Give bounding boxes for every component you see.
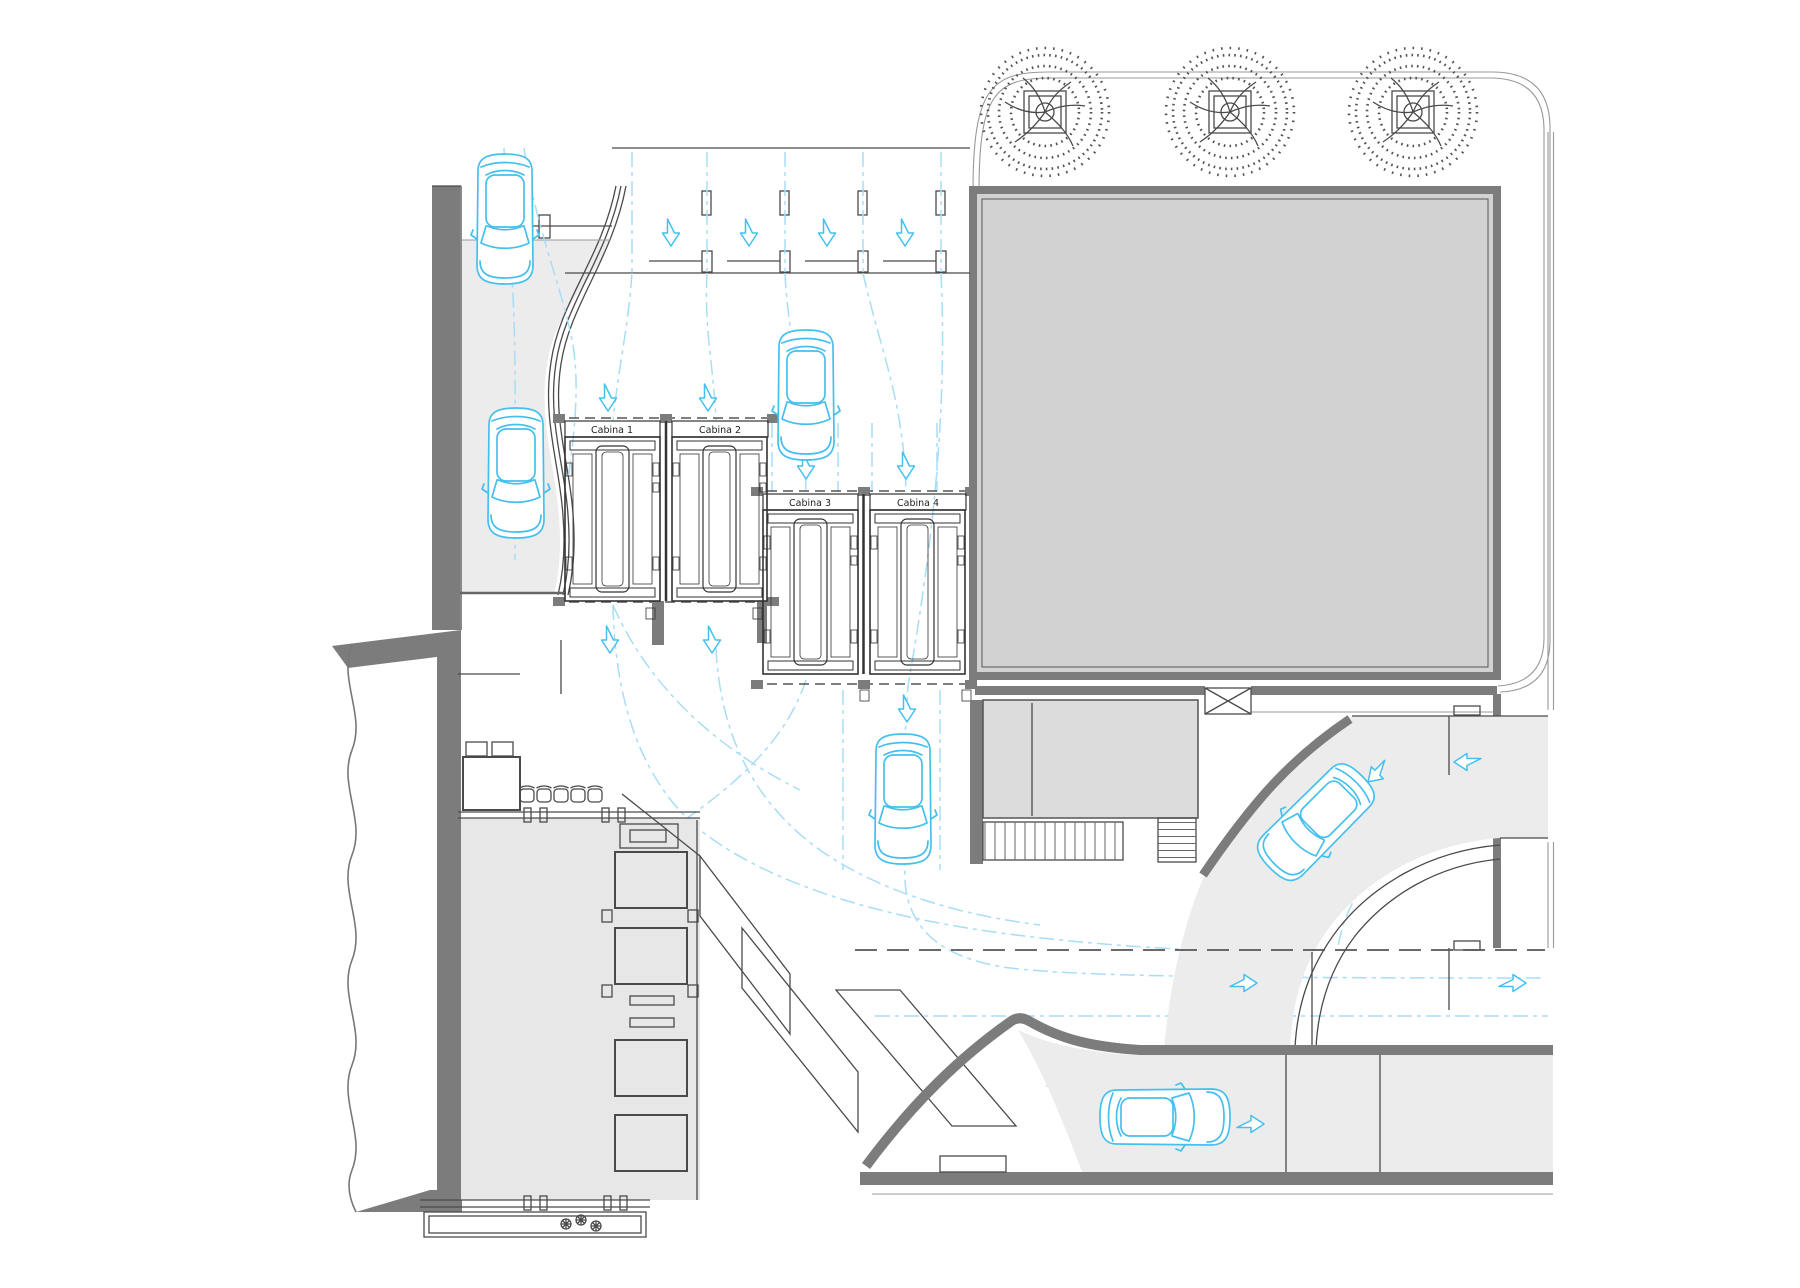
tree-icon [981,48,1109,176]
cabina-1-label: Cabina 1 [591,425,633,436]
car-icon [471,154,539,284]
ticket-machine [466,742,487,756]
flower-icon [576,1215,586,1225]
left-site-walls [332,186,462,1212]
floor-plan: Cabina 1 Cabina 2 Cabina 3 Cabina 4 [0,0,1800,1288]
chair-icon [571,786,586,802]
waiting-chairs [520,786,603,802]
cabina-3-label: Cabina 3 [789,498,831,509]
cabina-3: Cabina 3 [763,494,858,674]
control-booth [463,757,520,810]
stairs [983,818,1196,862]
queue-lanes [565,148,970,273]
cabina-1: Cabina 1 [565,421,660,601]
curved-ramp [1164,706,1548,1048]
lobby-floor [461,818,700,1200]
roof-garden-trees [981,48,1477,176]
chair-icon [588,786,603,802]
stair-ramp [700,856,790,1034]
crosswalk [836,990,1016,1126]
tree-icon [1349,48,1477,176]
flow-arrow-icon [704,626,721,653]
floor-plan-drawing: Cabina 1 Cabina 2 Cabina 3 Cabina 4 [0,0,1800,1288]
car-icon [482,408,550,538]
flow-arrow-icon [898,452,915,479]
main-building [973,190,1497,676]
flow-arrow-icon [741,219,758,246]
cabina-2: Cabina 2 [672,421,768,601]
tree-icon [1166,48,1294,176]
cabina-4-label: Cabina 4 [897,498,939,509]
flow-arrow-icon [1499,975,1526,992]
ramp-surface [1164,716,1548,1048]
flower-icon [591,1221,601,1231]
flow-arrow-icon [700,384,717,411]
chair-icon [554,786,569,802]
stair-ramp [742,928,858,1132]
break-line [348,645,356,1212]
flow-arrow-icon [600,384,617,411]
ticket-machine [492,742,513,756]
hatch-xbrace [1205,688,1251,714]
car-icon [869,734,937,864]
planter [424,1212,646,1237]
chair-icon [520,786,535,802]
lobby-building [420,640,700,1237]
flow-arrow-icon [897,219,914,246]
flow-arrow-icon [819,219,836,246]
flower-icon [561,1219,571,1229]
chair-icon [537,786,552,802]
kerb-step [940,1156,1006,1172]
cabina-2-label: Cabina 2 [699,425,741,436]
car-icon [1100,1083,1230,1151]
flow-arrow-icon [663,219,680,246]
cabina-4: Cabina 4 [870,494,966,674]
boom-gates [649,251,946,272]
car-icon [772,330,840,460]
